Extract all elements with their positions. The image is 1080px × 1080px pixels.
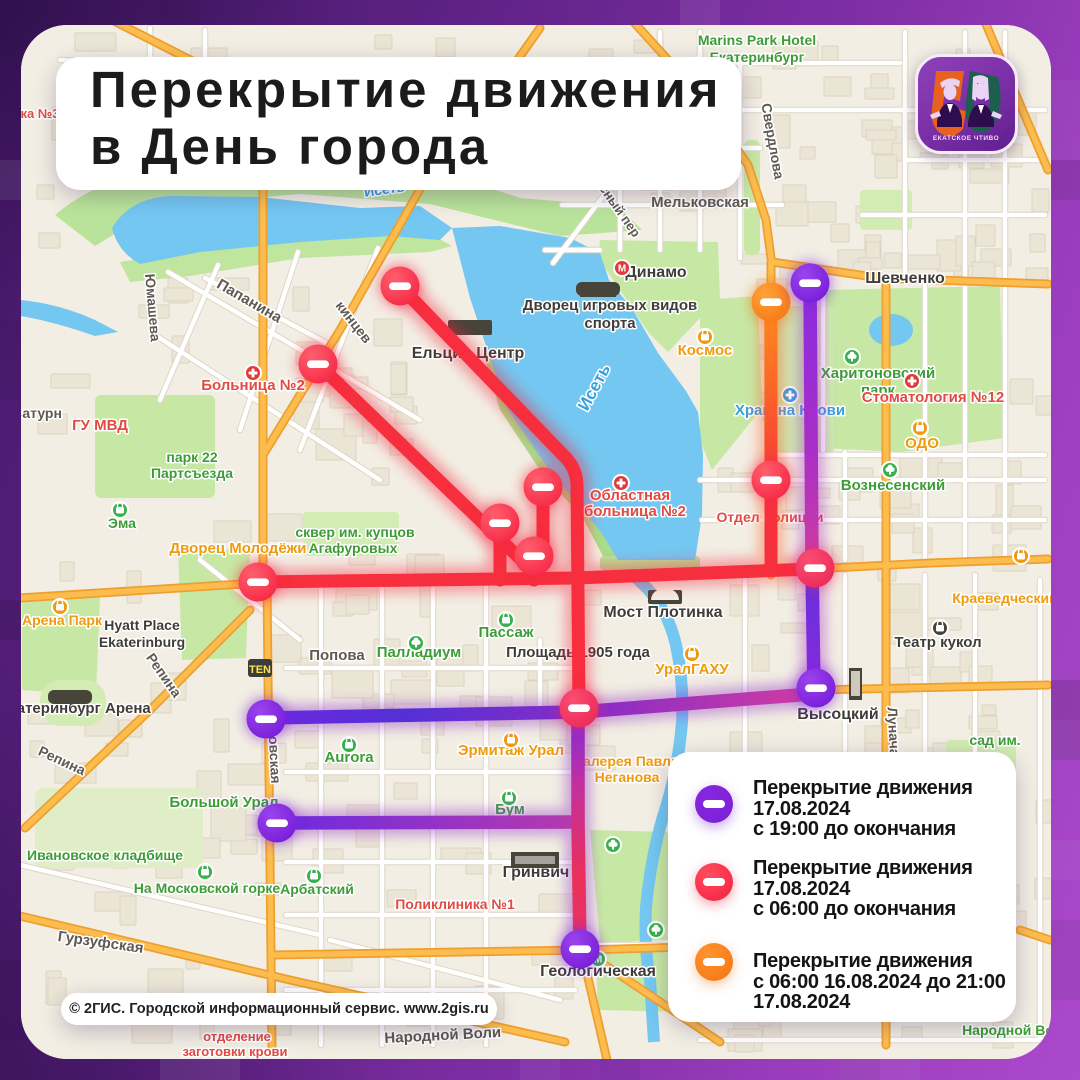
svg-text:Народной Во: Народной Во [962, 1022, 1051, 1038]
svg-text:Ekaterinburg: Ekaterinburg [99, 634, 185, 650]
svg-text:ОДО: ОДО [905, 435, 939, 452]
svg-text:Поликлиника №1: Поликлиника №1 [395, 896, 515, 912]
svg-text:Шевченко: Шевченко [865, 270, 945, 287]
svg-text:Дворец игровых видов: Дворец игровых видов [523, 297, 697, 314]
svg-text:ЕКАТСКОЕ ЧТИВО: ЕКАТСКОЕ ЧТИВО [933, 135, 999, 142]
svg-text:овская: овская [266, 736, 284, 784]
svg-text:ка №3: ка №3 [21, 106, 60, 121]
svg-text:УралГАХУ: УралГАХУ [655, 661, 729, 678]
svg-text:TEN: TEN [249, 664, 271, 676]
svg-text:Попова: Попова [309, 647, 365, 664]
svg-text:Областная: Областная [590, 487, 670, 504]
svg-text:парк 22: парк 22 [166, 449, 217, 465]
svg-text:Мост Плотинка: Мост Плотинка [603, 604, 722, 621]
svg-text:Marins Park Hotel: Marins Park Hotel [698, 32, 816, 48]
svg-text:Неганова: Неганова [595, 769, 660, 785]
svg-text:ГУ МВД: ГУ МВД [72, 417, 128, 434]
svg-text:Краеведческий: Краеведческий [952, 590, 1051, 606]
svg-text:Дворец Молодёжи: Дворец Молодёжи [169, 540, 306, 557]
svg-text:Сатурн: Сатурн [21, 405, 62, 421]
svg-text:Ивановское кладбище: Ивановское кладбище [27, 847, 183, 863]
svg-text:спорта: спорта [584, 315, 636, 332]
svg-text:больница №2: больница №2 [584, 503, 686, 520]
svg-text:На Московской горке: На Московской горке [134, 880, 281, 896]
svg-text:Вознесенский: Вознесенский [841, 477, 946, 494]
svg-text:Динамо: Динамо [625, 264, 686, 281]
svg-text:Партсъезда: Партсъезда [151, 465, 233, 481]
svg-text:Hyatt Place: Hyatt Place [104, 617, 180, 633]
svg-text:сквер им. купцов: сквер им. купцов [295, 524, 415, 540]
svg-text:отделение: отделение [203, 1029, 271, 1044]
svg-text:заготовки крови: заготовки крови [183, 1044, 288, 1059]
svg-text:Мельковская: Мельковская [651, 194, 749, 211]
svg-text:Агафуровых: Агафуровых [309, 540, 398, 556]
svg-text:сад им.: сад им. [969, 732, 1020, 748]
svg-text:Храм на Крови: Храм на Крови [735, 402, 845, 419]
svg-text:Стоматология №12: Стоматология №12 [862, 389, 1004, 406]
svg-text:М: М [618, 264, 626, 275]
